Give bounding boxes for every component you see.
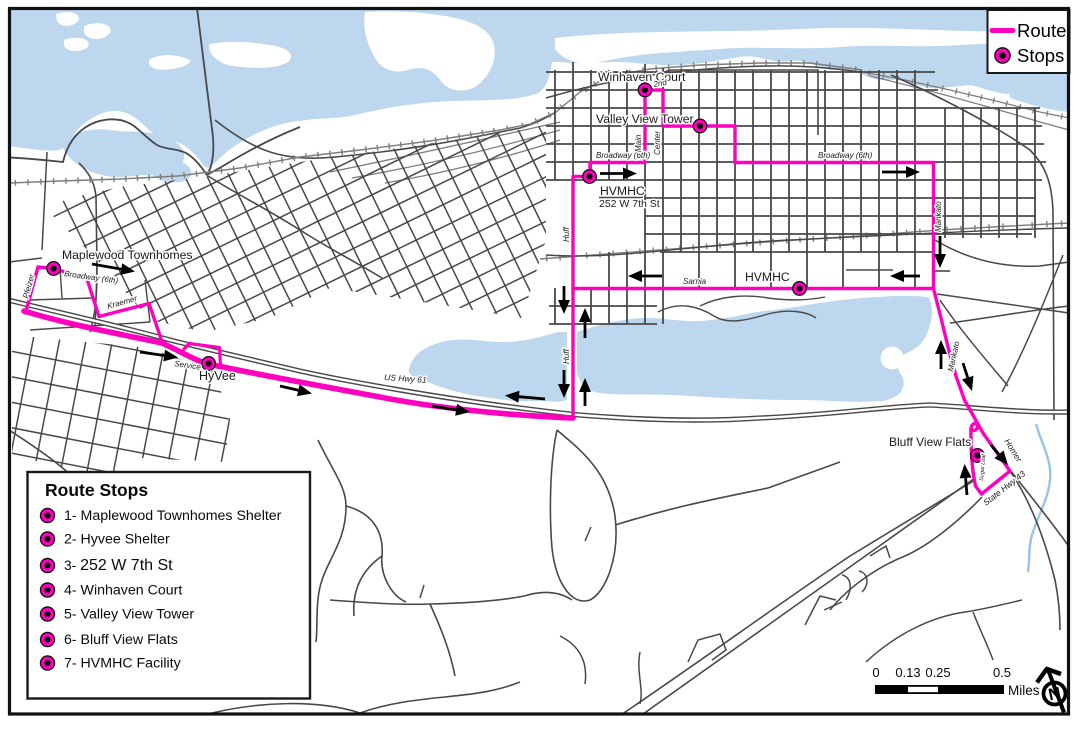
svg-text:Stops: Stops <box>1017 45 1064 66</box>
svg-text:1- Maplewood Townhomes Shelter: 1- Maplewood Townhomes Shelter <box>64 508 282 524</box>
svg-text:0.5: 0.5 <box>993 665 1011 680</box>
svg-text:252 W 7th St: 252 W 7th St <box>599 198 660 210</box>
svg-text:0.25: 0.25 <box>925 665 950 680</box>
svg-text:2- Hyvee Shelter: 2- Hyvee Shelter <box>64 532 170 548</box>
svg-text:Maplewood Townhomes: Maplewood Townhomes <box>62 248 193 262</box>
svg-text:Mankato: Mankato <box>934 201 943 232</box>
svg-text:4- Winhaven Court: 4- Winhaven Court <box>64 583 182 599</box>
svg-text:Route Stops: Route Stops <box>45 480 148 500</box>
svg-text:Valley View Tower: Valley View Tower <box>596 112 694 126</box>
svg-text:6- Bluff View Flats: 6- Bluff View Flats <box>64 632 178 648</box>
svg-text:Huff: Huff <box>562 227 571 242</box>
svg-text:5- Valley View Tower: 5- Valley View Tower <box>64 607 194 623</box>
svg-text:HVMHC: HVMHC <box>600 184 645 198</box>
svg-text:7- HVMHC Facility: 7- HVMHC Facility <box>64 656 182 672</box>
svg-text:Huff: Huff <box>562 349 571 364</box>
svg-text:Sarnia: Sarnia <box>683 277 707 286</box>
svg-text:Bluff View Flats: Bluff View Flats <box>889 435 971 449</box>
svg-text:Miles: Miles <box>1008 683 1040 698</box>
svg-text:HyVee: HyVee <box>199 369 236 383</box>
svg-text:0.13: 0.13 <box>895 665 920 680</box>
svg-text:Center: Center <box>653 131 662 155</box>
svg-text:HVMHC: HVMHC <box>745 270 790 284</box>
svg-text:3- 252 W 7th St: 3- 252 W 7th St <box>64 557 173 574</box>
svg-text:Winhaven Court: Winhaven Court <box>598 70 686 84</box>
svg-text:Route: Route <box>1017 20 1066 41</box>
svg-text:Broadway (6th): Broadway (6th) <box>818 151 873 160</box>
svg-text:Main: Main <box>634 134 643 152</box>
svg-text:0: 0 <box>872 665 879 680</box>
